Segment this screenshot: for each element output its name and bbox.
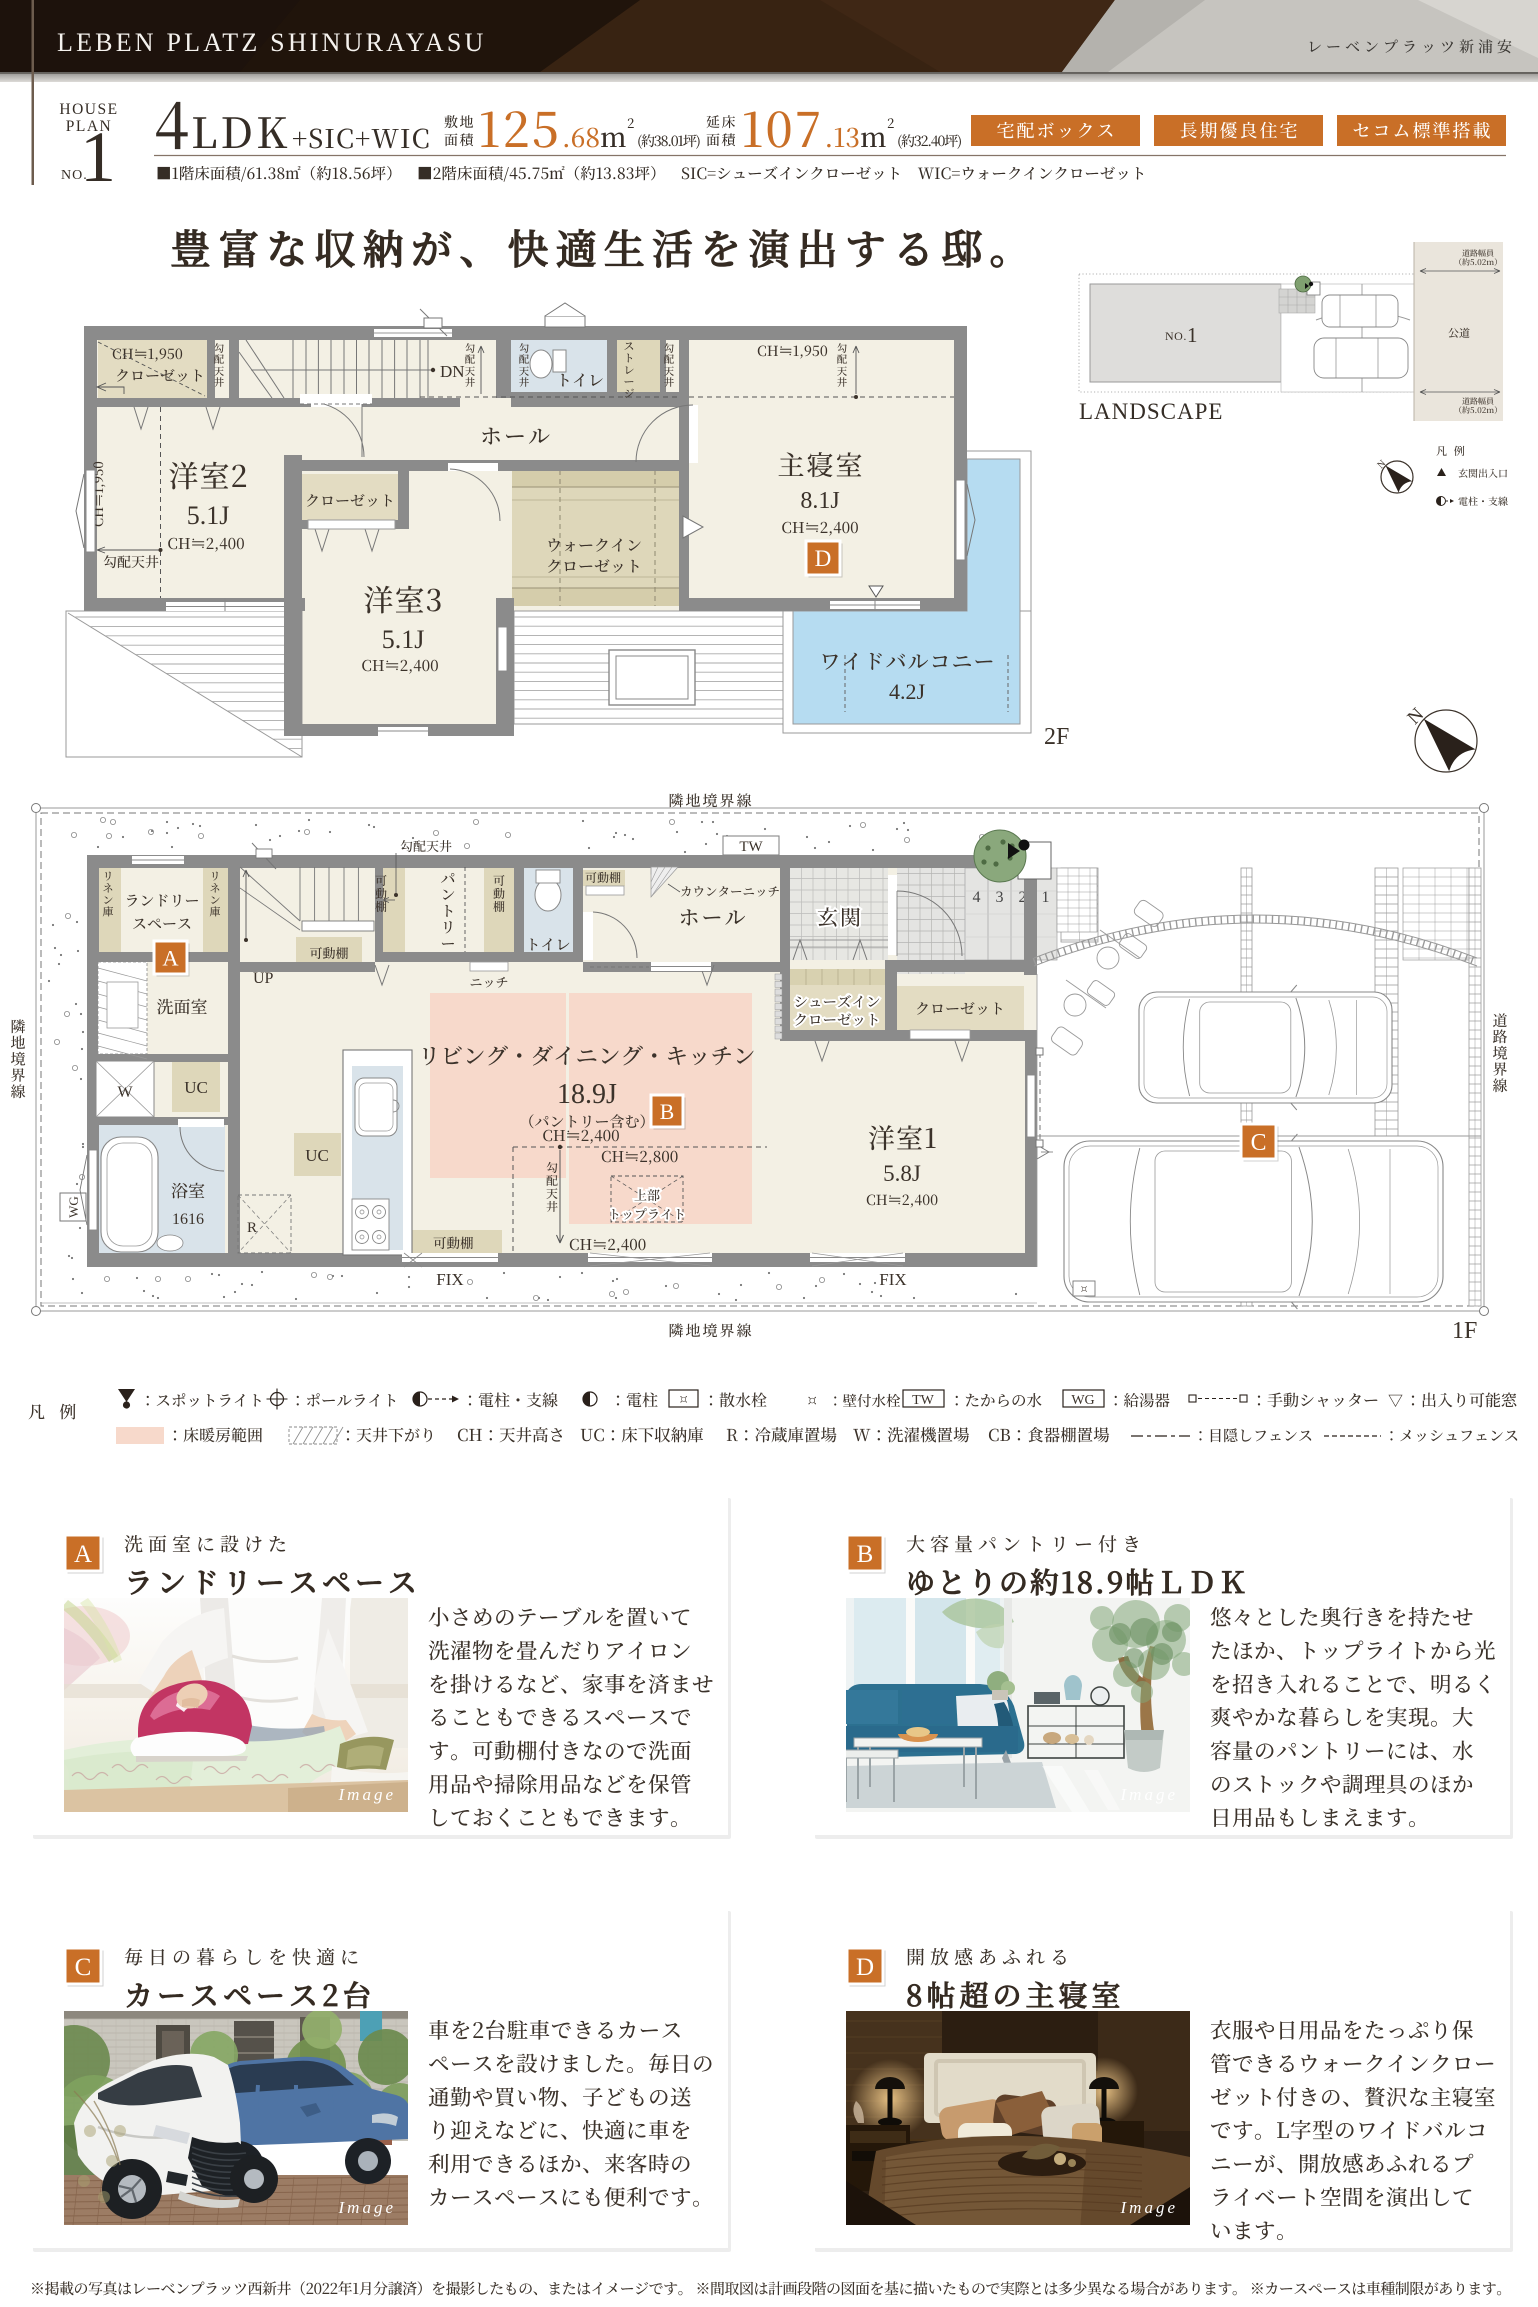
svg-text:C: C (1251, 1130, 1267, 1156)
svg-text:LEBEN PLATZ SHINURAYASU: LEBEN PLATZ SHINURAYASU (57, 28, 486, 57)
svg-text:Image: Image (338, 1785, 396, 1804)
svg-text:UC: UC (184, 1078, 208, 1097)
svg-text:DN: DN (440, 362, 465, 381)
svg-text:1: 1 (1042, 889, 1050, 906)
svg-text:5.1J: 5.1J (187, 501, 230, 530)
svg-text:1: 1 (1187, 323, 1198, 347)
svg-text:5.1J: 5.1J (382, 625, 425, 654)
svg-text:3: 3 (996, 889, 1004, 906)
svg-text:4: 4 (973, 889, 981, 906)
svg-text:8.1J: 8.1J (800, 488, 839, 514)
svg-text:R: R (247, 1220, 257, 1236)
svg-text:B: B (660, 1100, 675, 1124)
svg-text:Image: Image (1120, 1785, 1178, 1804)
svg-text:1F: 1F (1452, 1318, 1477, 1344)
svg-text:4.2J: 4.2J (889, 679, 926, 704)
svg-text:A: A (74, 1541, 92, 1568)
svg-text:FIX: FIX (436, 1270, 463, 1289)
svg-text:D: D (815, 546, 832, 572)
svg-text:UP: UP (253, 970, 274, 987)
svg-text:UC: UC (305, 1146, 329, 1165)
svg-text:C: C (75, 1954, 92, 1981)
svg-text:WG: WG (66, 1196, 81, 1218)
svg-text:TW: TW (912, 1393, 935, 1408)
svg-text:18.9J: 18.9J (557, 1079, 617, 1110)
svg-text:1616: 1616 (172, 1211, 204, 1228)
svg-text:1: 1 (80, 117, 116, 197)
svg-text:LANDSCAPE: LANDSCAPE (1079, 399, 1223, 424)
svg-text:B: B (857, 1541, 874, 1568)
svg-text:FIX: FIX (879, 1270, 906, 1289)
svg-text:5.8J: 5.8J (883, 1161, 921, 1186)
svg-text:WG: WG (1071, 1393, 1094, 1408)
svg-text:2F: 2F (1044, 724, 1069, 750)
svg-text:TW: TW (739, 839, 763, 855)
svg-text:Image: Image (1120, 2198, 1178, 2217)
svg-text:A: A (162, 945, 179, 970)
svg-text:D: D (856, 1954, 874, 1981)
svg-text:NO.: NO. (1165, 329, 1187, 343)
svg-text:W: W (117, 1084, 133, 1101)
svg-text:HOUSE: HOUSE (59, 101, 118, 118)
svg-text:Image: Image (338, 2198, 396, 2217)
